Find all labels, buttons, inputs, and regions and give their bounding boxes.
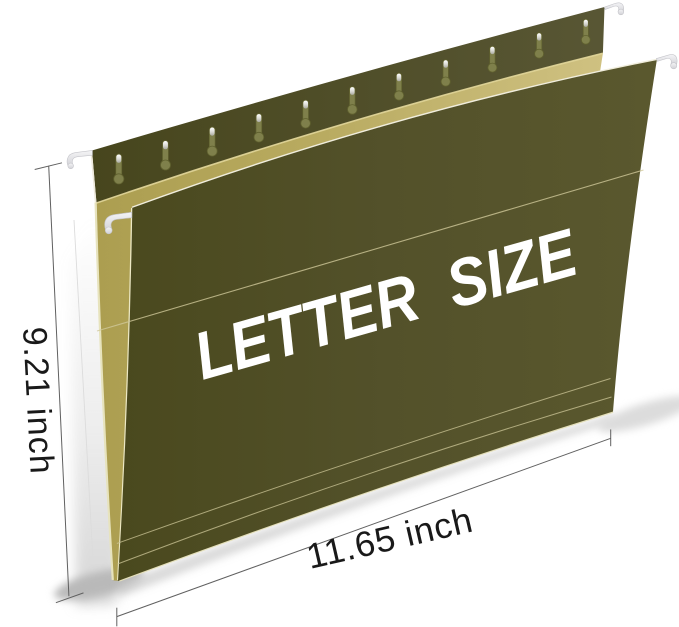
svg-text:9.21 inch: 9.21 inch: [15, 326, 61, 476]
